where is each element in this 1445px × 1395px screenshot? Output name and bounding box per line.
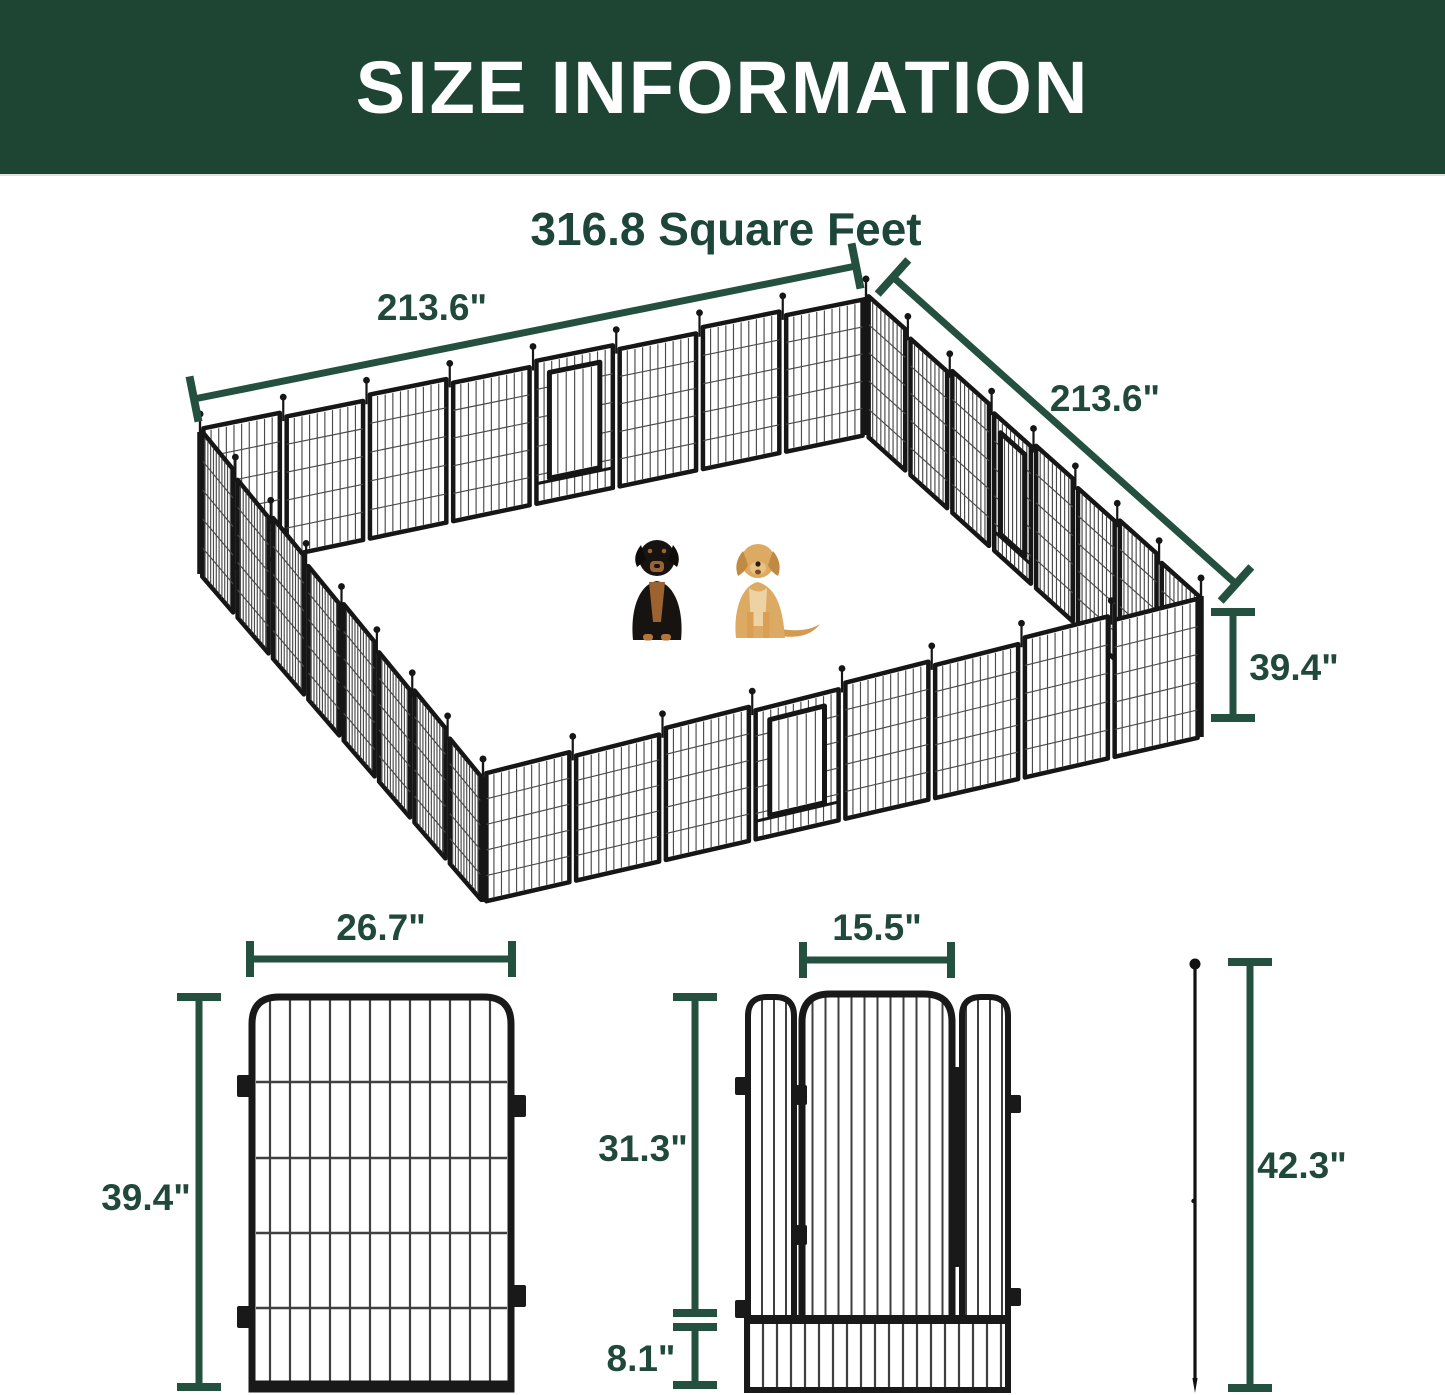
connector-tab	[511, 1285, 526, 1307]
dimension-panel-height: 39.4"	[1211, 612, 1339, 718]
rottweiler-dog-image	[632, 540, 681, 641]
door-latch	[950, 1067, 963, 1267]
connector-tab	[1008, 1095, 1021, 1113]
dimension-panel-detail-height: 39.4"	[101, 997, 221, 1387]
connector-tab	[511, 1095, 526, 1117]
size-diagram: 316.8 Square Feet 213.6"	[0, 176, 1445, 1395]
back-right-dimension-label: 213.6"	[1050, 378, 1160, 419]
back-left-dimension-label: 213.6"	[377, 287, 487, 328]
dimension-panel-width: 26.7"	[250, 907, 512, 977]
panel-detail-diagram: 26.7" 39.4"	[101, 907, 526, 1389]
connector-tab	[1008, 1288, 1021, 1306]
header-banner: SIZE INFORMATION	[0, 0, 1445, 176]
fence-wall-back-left	[197, 276, 870, 574]
fence-wall-front-right	[480, 575, 1205, 902]
connector-tab	[237, 1306, 252, 1328]
panel-outline	[252, 997, 511, 1389]
gate-right-section	[962, 997, 1008, 1318]
area-title: 316.8 Square Feet	[530, 203, 921, 255]
door-hinge	[796, 1085, 807, 1105]
panel-height-dimension-label: 39.4"	[1249, 647, 1339, 688]
connector-tab	[237, 1075, 252, 1097]
stake-point	[1192, 1378, 1197, 1393]
gate-bottom-section	[747, 1318, 1008, 1390]
golden-retriever-dog-image	[735, 544, 820, 638]
page-title: SIZE INFORMATION	[356, 45, 1090, 130]
door-hinge	[796, 1225, 807, 1245]
panel-width-dimension-label: 26.7"	[336, 907, 426, 948]
dimension-door-height: 31.3"	[598, 997, 717, 1313]
stake-length-dimension-label: 42.3"	[1257, 1145, 1347, 1186]
gate-detail-diagram: 15.5" 31.3" 8.1"	[598, 907, 1021, 1390]
panel-detail-height-label: 39.4"	[101, 1177, 191, 1218]
dimension-cap	[190, 376, 199, 421]
door-width-dimension-label: 15.5"	[832, 907, 922, 948]
gate-left-section	[748, 997, 794, 1318]
connector-tab	[735, 1077, 748, 1095]
bottom-height-dimension-label: 8.1"	[607, 1338, 676, 1379]
connector-tab	[735, 1300, 748, 1318]
gate-door	[802, 994, 952, 1320]
stake-ball-top	[1190, 959, 1201, 970]
dimension-bottom-height: 8.1"	[607, 1327, 717, 1385]
dimension-stake-length: 42.3"	[1228, 962, 1347, 1388]
stake-detail-diagram: 42.3"	[1190, 959, 1347, 1394]
dimension-door-width: 15.5"	[803, 907, 951, 978]
door-height-dimension-label: 31.3"	[598, 1128, 688, 1169]
